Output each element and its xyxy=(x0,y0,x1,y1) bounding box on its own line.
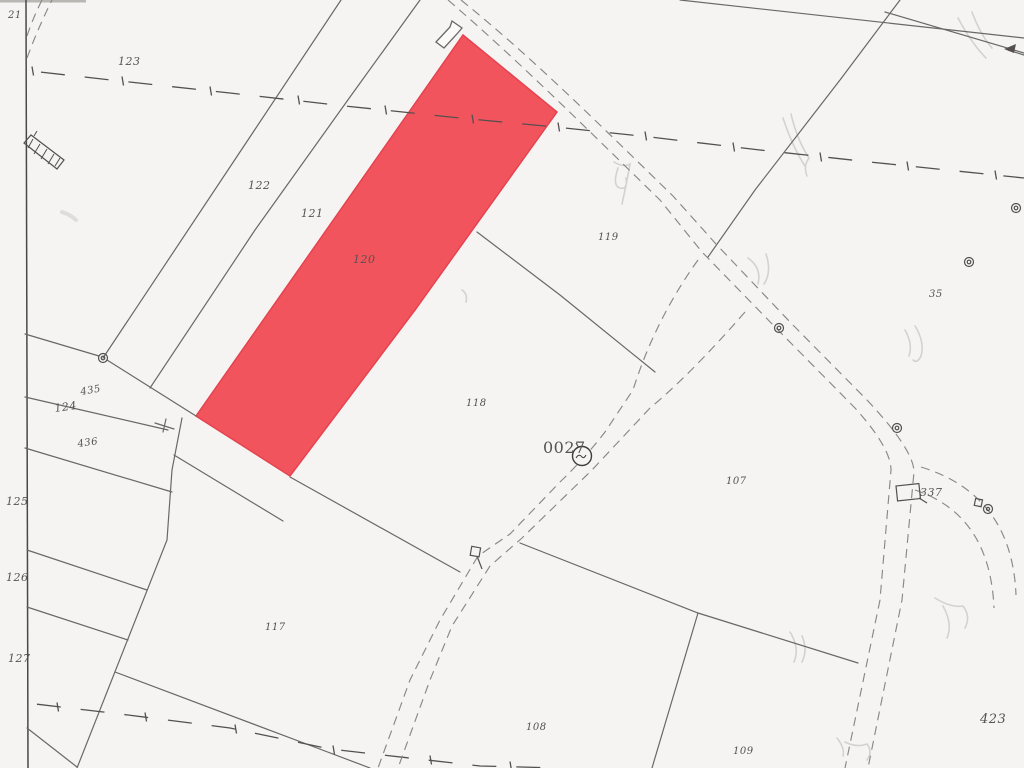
parcel-label-107: 107 xyxy=(726,476,747,487)
scan-edge-artifact xyxy=(0,0,86,3)
parcel-label-118: 118 xyxy=(466,398,487,409)
parcel-label-125: 125 xyxy=(6,495,29,508)
parcel-label-120: 120 xyxy=(353,253,376,266)
pump-label-0027: 0027 xyxy=(543,438,586,457)
parcel-label-108: 108 xyxy=(526,722,547,733)
parcel-label-121: 121 xyxy=(301,207,324,220)
map-viewport: 21 123 122 121 120 119 118 117 435 124 4… xyxy=(0,0,1024,768)
parcel-label-117: 117 xyxy=(265,622,286,633)
parcel-label-122: 122 xyxy=(248,179,271,192)
parcel-label-337: 337 xyxy=(920,486,943,499)
parcel-label-21: 21 xyxy=(7,10,22,21)
parcel-label-423: 423 xyxy=(979,712,1006,727)
parcel-label-35: 35 xyxy=(929,289,943,300)
parcel-label-109: 109 xyxy=(733,746,754,757)
parcel-label-127: 127 xyxy=(8,652,31,665)
parcel-label-123: 123 xyxy=(118,55,141,68)
parcel-label-119: 119 xyxy=(598,232,619,243)
cadastral-map: 21 123 122 121 120 119 118 117 435 124 4… xyxy=(0,0,1024,768)
parcel-label-126: 126 xyxy=(6,571,29,584)
